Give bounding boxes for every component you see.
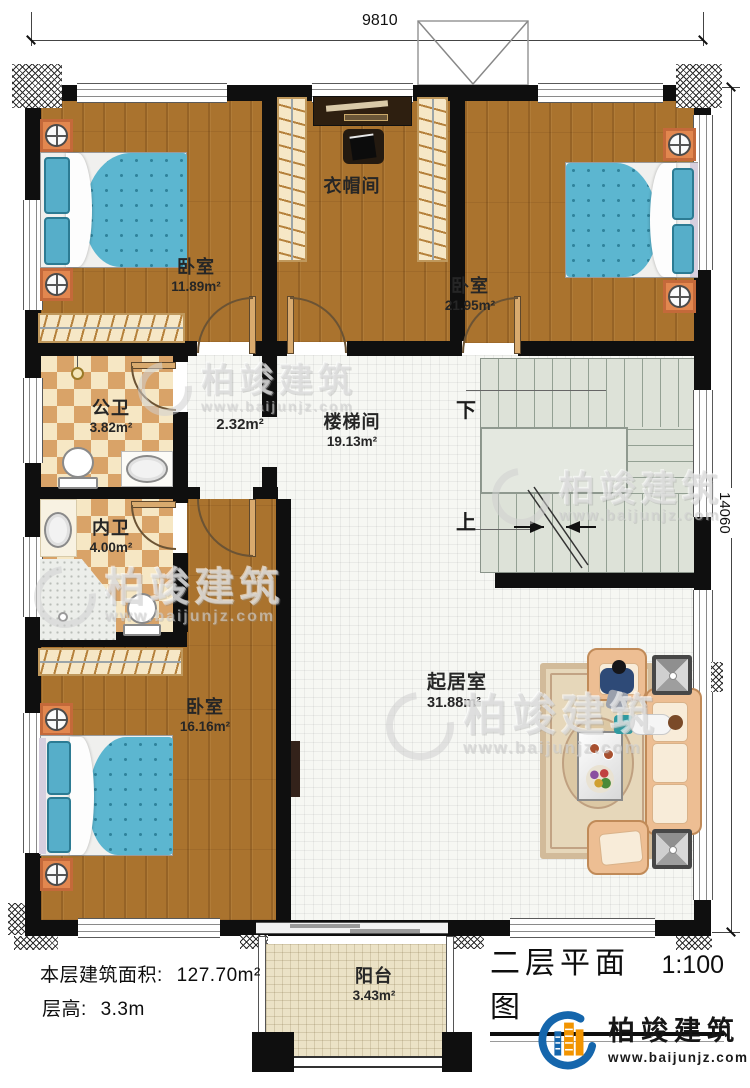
room-area: 4.00m² bbox=[71, 540, 151, 556]
wall-bed1-cloak bbox=[262, 101, 277, 341]
nightstand bbox=[663, 280, 696, 313]
room-name: 阳台 bbox=[324, 966, 424, 988]
room-label-inner-bath: 内卫 4.00m² bbox=[71, 518, 151, 556]
lamp-icon bbox=[45, 708, 68, 731]
window-bottom-bedroom3 bbox=[78, 918, 220, 938]
window-top-bedroom1 bbox=[77, 83, 227, 103]
chair-seat bbox=[349, 133, 376, 160]
stairs-up-label: 上 bbox=[456, 506, 476, 535]
room-name: 衣帽间 bbox=[302, 176, 402, 198]
floor-area-label: 本层建筑面积: bbox=[40, 965, 163, 986]
chair bbox=[343, 129, 384, 164]
pillow bbox=[672, 168, 694, 220]
room-area: 31.88m² bbox=[427, 695, 537, 712]
lamp-icon bbox=[668, 285, 691, 308]
hatch-mark bbox=[711, 662, 723, 692]
room-label-cloakroom: 衣帽间 bbox=[302, 176, 402, 198]
room-label-living: 起居室 31.88m² bbox=[427, 672, 537, 712]
room-name: 卧室 bbox=[420, 276, 520, 298]
room-area: 16.16m² bbox=[155, 719, 255, 735]
stairs-down-label: 下 bbox=[456, 394, 476, 423]
balcony-sliding-door bbox=[256, 922, 448, 934]
balcony-pillar-right bbox=[442, 1032, 472, 1072]
room-name: 楼梯间 bbox=[297, 412, 407, 434]
side-table bbox=[652, 655, 692, 695]
dressing-table bbox=[313, 96, 412, 126]
room-label-bedroom1: 卧室 11.89m² bbox=[146, 257, 246, 295]
shower-drain bbox=[58, 612, 68, 622]
room-label-stairwell: 楼梯间 19.13m² bbox=[297, 412, 407, 450]
room-area: 2.32m² bbox=[195, 416, 285, 434]
room-name: 卧室 bbox=[146, 257, 246, 279]
sink bbox=[44, 512, 72, 548]
room-label-hallway: 2.32m² bbox=[195, 416, 285, 434]
stairs-walkline-down bbox=[466, 390, 606, 391]
lamp-icon bbox=[45, 863, 68, 886]
armchair-cushion bbox=[598, 830, 643, 866]
hatch-mark bbox=[8, 903, 25, 935]
brand-logo: 柏竣建筑 www.baijunjz.com bbox=[536, 1010, 749, 1072]
person-body bbox=[630, 714, 672, 735]
room-name: 卧室 bbox=[155, 697, 255, 719]
bed-quilt bbox=[566, 163, 658, 277]
pendant-light-bulb bbox=[71, 367, 84, 380]
sliding-panel bbox=[350, 929, 420, 933]
bed-headboard bbox=[39, 738, 46, 854]
nightstand bbox=[40, 703, 73, 736]
brand-name: 柏竣建筑 bbox=[608, 1017, 749, 1047]
cup bbox=[589, 743, 600, 754]
person-head bbox=[612, 660, 626, 674]
bed-quilt bbox=[88, 737, 173, 855]
coffee-table bbox=[577, 731, 623, 801]
room-area: 11.89m² bbox=[146, 279, 246, 295]
dressing-mirror bbox=[326, 100, 388, 111]
side-table bbox=[652, 829, 692, 869]
flower-vase bbox=[586, 765, 614, 793]
room-area: 21.95m² bbox=[420, 298, 520, 314]
top-dimension-value: 9810 bbox=[358, 12, 402, 30]
person-legs bbox=[605, 689, 629, 712]
lamp-icon bbox=[668, 133, 691, 156]
room-name: 起居室 bbox=[427, 672, 537, 695]
room-label-balcony: 阳台 3.43m² bbox=[324, 966, 424, 1004]
floor-area-value: 127.70m² bbox=[177, 965, 261, 986]
nightstand bbox=[663, 128, 696, 161]
toilet-bowl bbox=[127, 593, 157, 624]
canopy-symbol bbox=[417, 20, 529, 86]
wardrobe bbox=[38, 648, 183, 676]
wall-h1-c bbox=[347, 341, 462, 356]
table-lamp-dot bbox=[669, 672, 677, 680]
nightstand bbox=[40, 858, 73, 891]
room-area: 3.82m² bbox=[71, 420, 151, 436]
wall-h1-a bbox=[25, 341, 197, 356]
lamp-icon bbox=[45, 124, 68, 147]
room-label-bedroom2: 卧室 21.95m² bbox=[420, 276, 520, 314]
brand-logo-icon bbox=[536, 1010, 598, 1072]
person-sitting bbox=[600, 660, 640, 712]
window-left-public-bath bbox=[23, 378, 43, 463]
floor-height-text: 层高: 3.3m bbox=[42, 994, 145, 1021]
wall-h2-b bbox=[253, 487, 278, 499]
right-dim-ext-bottom bbox=[712, 932, 740, 933]
sofa-cushion bbox=[652, 743, 688, 783]
nightstand bbox=[40, 268, 73, 301]
sliding-panel bbox=[290, 924, 360, 928]
window-top-bedroom2 bbox=[538, 83, 663, 103]
floor-area-text: 本层建筑面积: 127.70m² bbox=[40, 960, 261, 987]
room-area: 3.43m² bbox=[324, 988, 424, 1004]
wardrobe bbox=[417, 97, 448, 262]
dressing-items bbox=[344, 114, 388, 121]
sofa-cushion bbox=[652, 784, 688, 824]
room-name: 内卫 bbox=[71, 518, 151, 540]
room-label-public-bath: 公卫 3.82m² bbox=[71, 398, 151, 436]
hatch-mark bbox=[14, 936, 58, 950]
pillow bbox=[44, 217, 70, 265]
toilet bbox=[58, 477, 98, 489]
person-head bbox=[668, 715, 683, 730]
floor-plan: 9810 14060 下 上 bbox=[0, 0, 750, 1088]
wall-hall-right-a bbox=[262, 356, 277, 417]
person-lying bbox=[614, 710, 684, 738]
bed-quilt bbox=[84, 153, 187, 267]
wardrobe bbox=[38, 313, 185, 343]
pillow bbox=[44, 157, 70, 214]
room-label-bedroom3: 卧室 16.16m² bbox=[155, 697, 255, 735]
floor-height-value: 3.3m bbox=[101, 999, 145, 1020]
drawing-scale: 1:100 bbox=[661, 951, 724, 980]
hatch-mark bbox=[12, 64, 62, 108]
toilet-bowl bbox=[62, 447, 94, 478]
top-dimension-line bbox=[31, 40, 704, 41]
wall-bath-right-c bbox=[173, 553, 188, 632]
room-area: 19.13m² bbox=[297, 434, 407, 450]
room-name: 公卫 bbox=[71, 398, 151, 420]
wall-h2-a bbox=[25, 487, 200, 499]
pillow bbox=[47, 797, 71, 853]
lamp-icon bbox=[45, 273, 68, 296]
balcony-pillar-left bbox=[252, 1032, 294, 1072]
wall-hall-right-b bbox=[262, 467, 277, 487]
window-bottom-living bbox=[510, 918, 655, 938]
toilet bbox=[123, 624, 161, 636]
table-lamp-dot bbox=[669, 846, 677, 854]
pillow bbox=[672, 224, 694, 274]
nightstand bbox=[40, 119, 73, 152]
cup bbox=[603, 749, 614, 760]
right-dimension-value: 14060 bbox=[716, 488, 733, 538]
floor-height-label: 层高: bbox=[42, 999, 87, 1020]
pillow bbox=[47, 741, 71, 795]
armchair bbox=[587, 820, 649, 875]
wall-h1-b bbox=[253, 341, 287, 356]
wall-h1-d bbox=[518, 341, 695, 356]
tv-panel bbox=[291, 741, 300, 797]
sink bbox=[126, 455, 168, 483]
wall-bed3-living bbox=[276, 499, 291, 920]
brand-website: www.baijunjz.com bbox=[608, 1050, 749, 1065]
window-right-stairs bbox=[693, 390, 713, 517]
hatch-mark bbox=[676, 64, 722, 108]
stairs-break-symbol bbox=[500, 470, 620, 590]
